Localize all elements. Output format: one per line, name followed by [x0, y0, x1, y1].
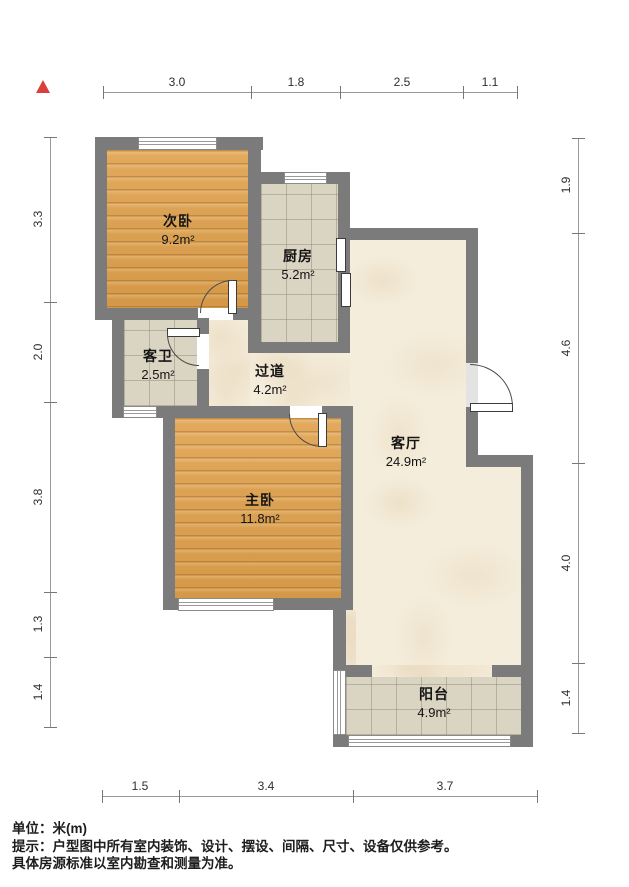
- window-balcony-bottom: [348, 735, 511, 747]
- dimension-tick: [44, 727, 57, 728]
- window-kitchen: [284, 172, 327, 184]
- floor-living-sliver: [346, 610, 356, 665]
- sliding-door-kitchen-panel2: [341, 273, 351, 307]
- dim-right-1: 1.9: [559, 177, 573, 194]
- room-name: 客厅: [386, 433, 426, 453]
- room-area: 11.8m²: [240, 511, 280, 526]
- dimension-tick: [251, 86, 252, 99]
- dimension-line-right: [578, 138, 579, 733]
- dimension-tick: [537, 790, 538, 803]
- room-name: 次卧: [161, 211, 194, 231]
- wall-segment: [95, 137, 107, 320]
- room-label-master-bedroom: 主卧 11.8m²: [240, 490, 280, 526]
- dim-left-5: 1.4: [31, 684, 45, 701]
- dimension-tick: [102, 790, 103, 803]
- wall-segment: [341, 406, 353, 610]
- room-area: 9.2m²: [161, 232, 194, 247]
- room-label-secondary-bedroom: 次卧 9.2m²: [161, 211, 194, 247]
- dimension-tick: [179, 790, 180, 803]
- dimension-tick: [340, 86, 341, 99]
- window-secondary-bedroom: [138, 137, 217, 150]
- dimension-line-left: [50, 137, 51, 727]
- wall-segment: [346, 665, 372, 677]
- room-label-kitchen: 厨房 5.2m²: [281, 246, 314, 282]
- room-label-living-room: 客厅 24.9m²: [386, 433, 426, 469]
- dimension-tick: [572, 138, 585, 139]
- room-label-guest-bathroom: 客卫 2.5m²: [141, 346, 174, 382]
- dimension-tick: [572, 233, 585, 234]
- window-master-bedroom: [178, 598, 274, 611]
- dimension-tick: [44, 657, 57, 658]
- dim-left-4: 1.3: [31, 616, 45, 633]
- room-name: 过道: [253, 361, 286, 381]
- wall-segment: [95, 308, 198, 320]
- disclaimer-line2: 具体房源标准以室内勘查和测量为准。: [12, 852, 242, 872]
- dim-right-2: 4.6: [559, 340, 573, 357]
- wall-segment: [248, 342, 350, 353]
- sliding-door-kitchen-panel1: [336, 238, 346, 272]
- room-name: 客卫: [141, 346, 174, 366]
- dim-top-4: 1.1: [482, 75, 499, 89]
- wall-segment: [112, 318, 124, 418]
- room-area: 24.9m²: [386, 454, 426, 469]
- wall-segment: [466, 228, 478, 363]
- wall-segment: [511, 735, 533, 747]
- room-area: 4.2m²: [253, 382, 286, 397]
- dim-bottom-1: 1.5: [132, 779, 149, 793]
- unit-note: 单位：米(m): [12, 817, 87, 837]
- room-area: 4.9m²: [417, 705, 450, 720]
- room-label-hallway: 过道 4.2m²: [253, 361, 286, 397]
- window-balcony-left: [333, 670, 346, 735]
- dim-top-3: 2.5: [394, 75, 411, 89]
- wall-segment: [163, 406, 175, 610]
- dim-bottom-2: 3.4: [258, 779, 275, 793]
- room-area: 2.5m²: [141, 367, 174, 382]
- dimension-tick: [44, 402, 57, 403]
- dimension-line-top: [103, 92, 517, 93]
- room-name: 阳台: [417, 684, 450, 704]
- dim-bottom-3: 3.7: [437, 779, 454, 793]
- floor-hallway-west: [209, 320, 250, 406]
- dim-top-1: 3.0: [169, 75, 186, 89]
- dimension-tick: [103, 86, 104, 99]
- room-name: 厨房: [281, 246, 314, 266]
- dimension-line-bottom: [102, 796, 537, 797]
- dim-right-3: 4.0: [559, 555, 573, 572]
- room-area: 5.2m²: [281, 267, 314, 282]
- dimension-tick: [44, 592, 57, 593]
- dim-right-4: 1.4: [559, 690, 573, 707]
- dimension-tick: [572, 463, 585, 464]
- room-label-balcony: 阳台 4.9m²: [417, 684, 450, 720]
- dim-left-2: 2.0: [31, 344, 45, 361]
- window-guest-bathroom: [123, 406, 157, 418]
- dim-left-1: 3.3: [31, 211, 45, 228]
- dimension-tick: [353, 790, 354, 803]
- floor-balcony-opening: [372, 665, 492, 677]
- wall-segment: [521, 455, 533, 747]
- dimension-tick: [44, 137, 57, 138]
- floor-living-lower: [353, 467, 521, 665]
- dimension-tick: [517, 86, 518, 99]
- dim-top-2: 1.8: [288, 75, 305, 89]
- dimension-tick: [572, 663, 585, 664]
- room-name: 主卧: [240, 490, 280, 510]
- wall-segment: [333, 610, 346, 670]
- wall-segment: [492, 665, 521, 677]
- floor-plan: 次卧 9.2m² 厨房 5.2m² 客卫 2.5m² 过道 4.2m² 客厅 2…: [0, 0, 629, 887]
- dimension-tick: [572, 733, 585, 734]
- dimension-tick: [44, 302, 57, 303]
- wall-segment: [248, 137, 261, 353]
- door-swing-entry: [470, 364, 513, 407]
- wall-segment: [333, 735, 348, 747]
- north-arrow-icon: [36, 80, 50, 93]
- dimension-tick: [463, 86, 464, 99]
- wall-segment: [338, 228, 478, 240]
- dim-left-3: 3.8: [31, 489, 45, 506]
